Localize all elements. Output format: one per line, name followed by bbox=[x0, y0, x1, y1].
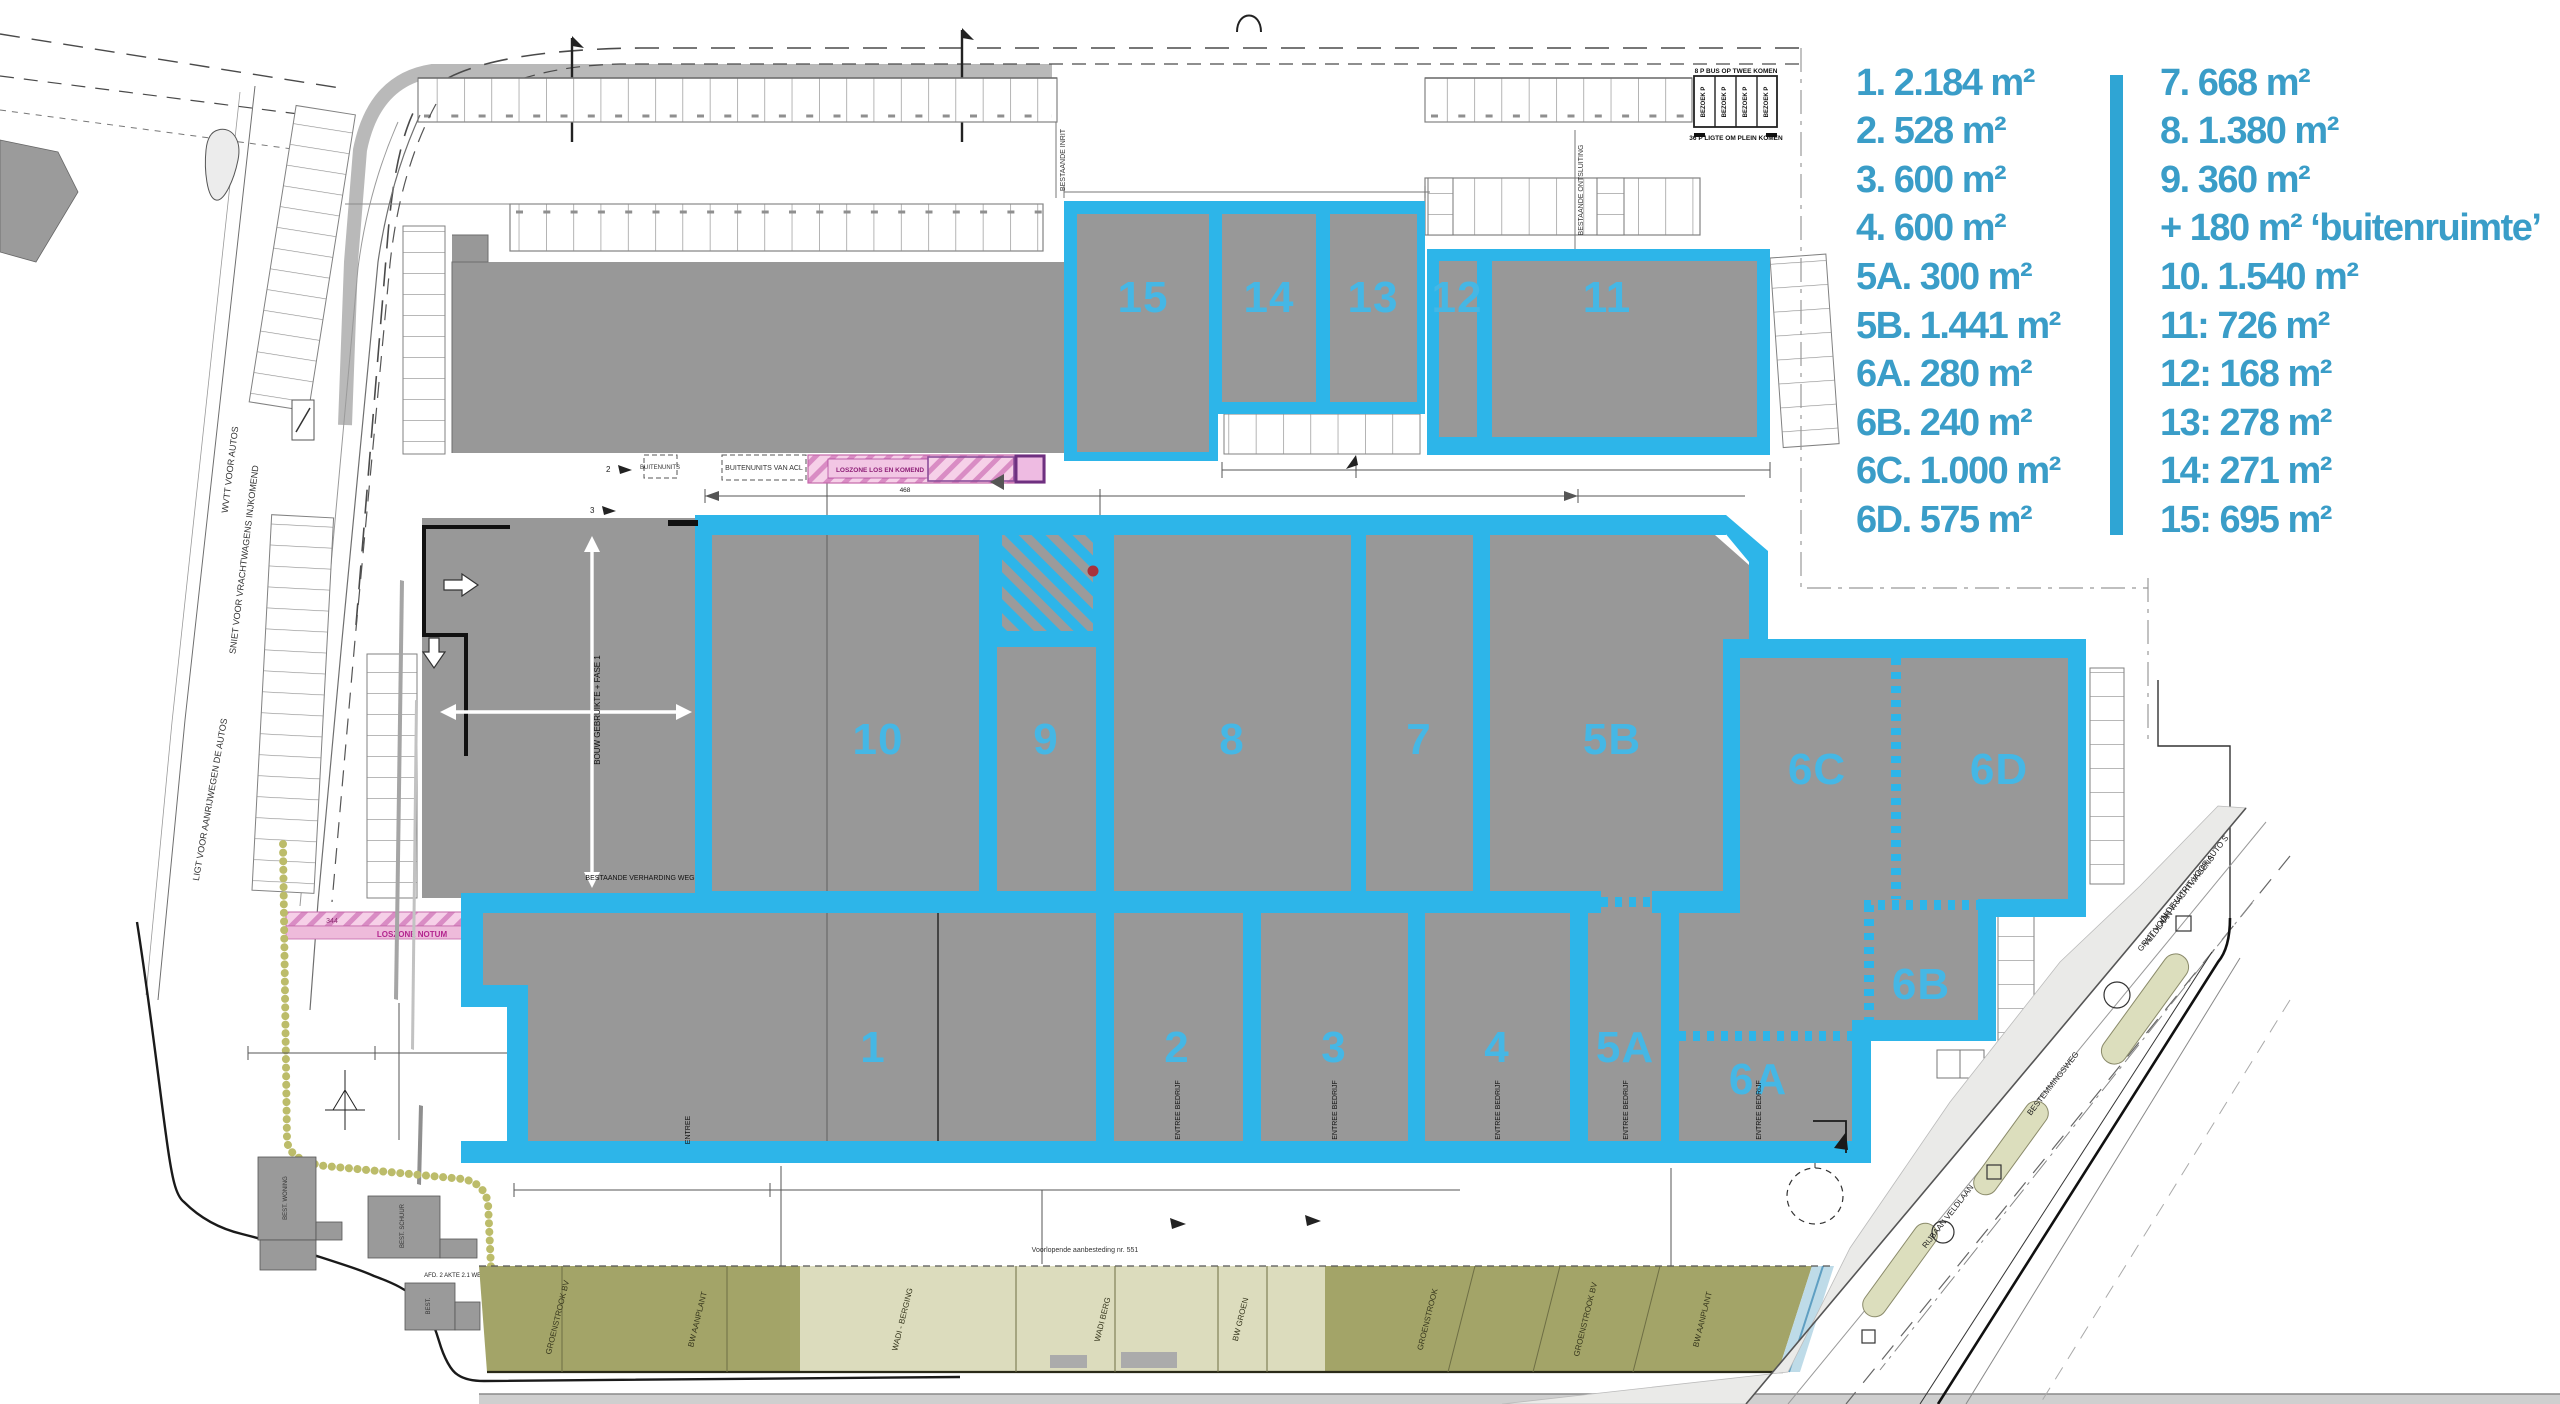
svg-text:9: 9 bbox=[1033, 715, 1058, 764]
svg-text:2: 2 bbox=[606, 465, 611, 474]
svg-text:ENTREE BEDRIJF: ENTREE BEDRIJF bbox=[1332, 1080, 1339, 1140]
svg-text:3: 3 bbox=[590, 506, 595, 515]
svg-text:BEZOEK P: BEZOEK P bbox=[1722, 87, 1728, 118]
svg-text:5A: 5A bbox=[1596, 1023, 1654, 1072]
svg-text:BESTAANDE VERHARDING WEG: BESTAANDE VERHARDING WEG bbox=[585, 875, 694, 882]
svg-text:ENTREE BEDRIJF: ENTREE BEDRIJF bbox=[1175, 1080, 1182, 1140]
svg-text:5A. 300 m²: 5A. 300 m² bbox=[1856, 256, 2032, 298]
svg-text:14: 271 m²: 14: 271 m² bbox=[2160, 450, 2332, 492]
svg-text:9. 360 m²: 9. 360 m² bbox=[2160, 159, 2310, 201]
svg-text:Voorlopende aanbesteding nr. 5: Voorlopende aanbesteding nr. 551 bbox=[1032, 1247, 1139, 1254]
svg-text:5B. 1.441 m²: 5B. 1.441 m² bbox=[1856, 305, 2061, 347]
svg-text:1. 2.184 m²: 1. 2.184 m² bbox=[1856, 62, 2035, 104]
svg-text:6B. 240 m²: 6B. 240 m² bbox=[1856, 402, 2032, 444]
svg-text:ENTREE BEDRIJF: ENTREE BEDRIJF bbox=[1756, 1080, 1763, 1140]
svg-text:10: 10 bbox=[853, 715, 904, 764]
svg-text:15: 695 m²: 15: 695 m² bbox=[2160, 499, 2332, 541]
svg-text:6D: 6D bbox=[1970, 745, 2028, 794]
svg-text:12: 168 m²: 12: 168 m² bbox=[2160, 353, 2332, 395]
svg-text:7: 7 bbox=[1406, 715, 1431, 764]
svg-text:8: 8 bbox=[1219, 715, 1244, 764]
svg-text:11: 726 m²: 11: 726 m² bbox=[2160, 305, 2330, 347]
svg-text:BEST. SCHUUR: BEST. SCHUUR bbox=[400, 1203, 406, 1248]
svg-text:ENTREE BEDRIJF: ENTREE BEDRIJF bbox=[1495, 1080, 1502, 1140]
svg-text:7. 668 m²: 7. 668 m² bbox=[2160, 62, 2310, 104]
svg-text:BEST.: BEST. bbox=[426, 1297, 432, 1314]
svg-text:12: 12 bbox=[1432, 273, 1483, 322]
svg-text:4. 600 m²: 4. 600 m² bbox=[1856, 207, 2006, 249]
svg-text:15: 15 bbox=[1118, 273, 1169, 322]
svg-text:LOSZONE NOTUM: LOSZONE NOTUM bbox=[377, 930, 448, 939]
svg-text:344: 344 bbox=[326, 918, 338, 925]
svg-text:13: 13 bbox=[1348, 273, 1399, 322]
svg-text:BEST. WONING: BEST. WONING bbox=[283, 1176, 289, 1220]
svg-text:11: 11 bbox=[1583, 273, 1632, 322]
svg-text:4: 4 bbox=[1484, 1023, 1509, 1072]
svg-text:BEZOEK P: BEZOEK P bbox=[1764, 87, 1770, 118]
svg-text:6A. 280 m²: 6A. 280 m² bbox=[1856, 353, 2032, 395]
svg-text:ENTREE BEDRIJF: ENTREE BEDRIJF bbox=[1623, 1080, 1630, 1140]
svg-text:10. 1.540 m²: 10. 1.540 m² bbox=[2160, 256, 2358, 298]
svg-text:3: 3 bbox=[1321, 1023, 1346, 1072]
svg-text:BEZOEK P: BEZOEK P bbox=[1743, 87, 1749, 118]
svg-text:6C: 6C bbox=[1788, 745, 1846, 794]
svg-text:6C. 1.000 m²: 6C. 1.000 m² bbox=[1856, 450, 2061, 492]
svg-text:5B: 5B bbox=[1583, 715, 1641, 764]
svg-text:1: 1 bbox=[860, 1023, 885, 1072]
svg-text:+ 180 m² ‘buitenruimte’: + 180 m² ‘buitenruimte’ bbox=[2160, 207, 2540, 249]
svg-text:468: 468 bbox=[900, 487, 911, 494]
svg-text:14: 14 bbox=[1244, 273, 1295, 322]
svg-text:BUITENUNITS VAN ACL: BUITENUNITS VAN ACL bbox=[725, 465, 803, 472]
svg-text:13: 278 m²: 13: 278 m² bbox=[2160, 402, 2332, 444]
svg-text:BESTAANDE INRIT: BESTAANDE INRIT bbox=[1060, 128, 1067, 191]
svg-text:8. 1.380 m²: 8. 1.380 m² bbox=[2160, 110, 2339, 152]
svg-text:3. 600 m²: 3. 600 m² bbox=[1856, 159, 2006, 201]
svg-text:BUITENUNITS: BUITENUNITS bbox=[640, 465, 680, 471]
svg-text:36 P LIGTE OM PLEIN KOMEN: 36 P LIGTE OM PLEIN KOMEN bbox=[1689, 135, 1783, 142]
svg-text:BEZOEK P: BEZOEK P bbox=[1701, 87, 1707, 118]
svg-text:ENTREE: ENTREE bbox=[685, 1115, 692, 1144]
svg-text:BESTAANDE ONTSLUITING: BESTAANDE ONTSLUITING bbox=[1578, 145, 1585, 236]
svg-text:8 P BUS OP TWEE KOMEN: 8 P BUS OP TWEE KOMEN bbox=[1695, 68, 1778, 75]
svg-text:2: 2 bbox=[1164, 1023, 1189, 1072]
svg-text:LOSZONE LOS EN KOMEND: LOSZONE LOS EN KOMEND bbox=[836, 467, 924, 474]
svg-text:BOUW GEBRUIKTE + FASE 1: BOUW GEBRUIKTE + FASE 1 bbox=[593, 655, 602, 765]
svg-text:6B: 6B bbox=[1892, 960, 1950, 1009]
svg-text:6D. 575 m²: 6D. 575 m² bbox=[1856, 499, 2032, 541]
svg-text:AFD. 2 AKTE 2.1 WEG: AFD. 2 AKTE 2.1 WEG bbox=[424, 1273, 486, 1279]
svg-text:2. 528 m²: 2. 528 m² bbox=[1856, 110, 2006, 152]
